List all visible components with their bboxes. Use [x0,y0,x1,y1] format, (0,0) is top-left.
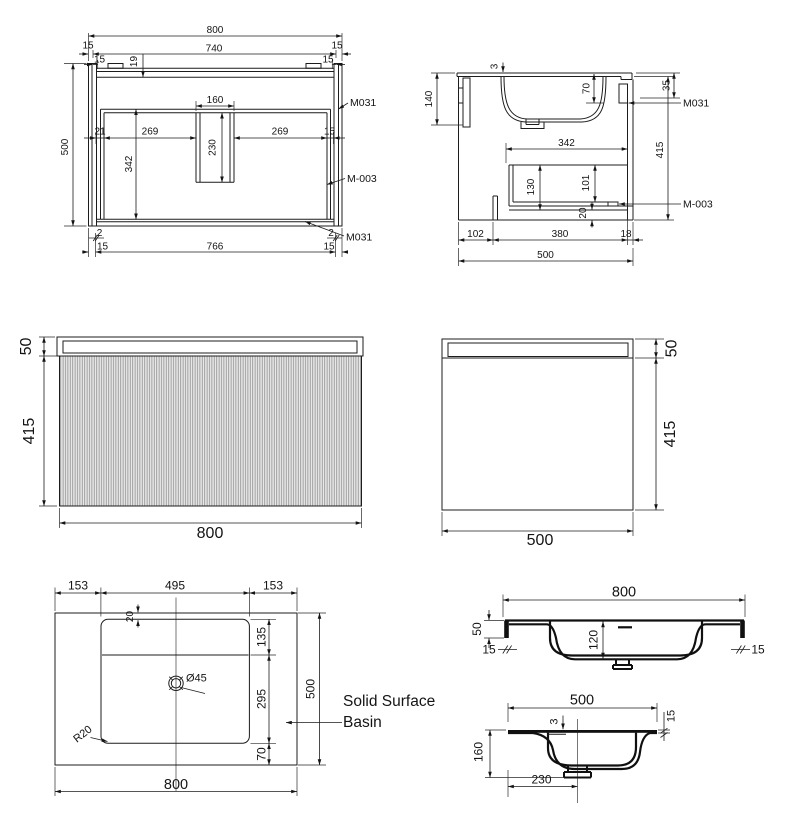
dim-top-height: 50 [18,338,35,356]
dim-overall-depth: 500 [537,250,554,261]
dim-margin-left: 153 [68,579,88,593]
vanity-drawing-canvas: 800 740 15 15 15 15 19 500 160 21 269 23… [0,0,800,839]
dim-edge-left: 15 [482,643,496,657]
part-label-m003: M-003 [683,199,713,211]
dim-width: 800 [612,585,636,601]
basin-note-line2: Basin [343,714,382,731]
dim-inner-height: 342 [124,155,135,172]
dim-depth: 500 [570,693,594,709]
dim-foot-right: 2 [328,228,334,239]
fluted-door-panel [60,356,362,506]
drawer-runner [608,202,618,206]
part-label-m031-top: M031 [350,97,376,109]
radius-leader [91,738,108,742]
side-elevation-view: 50 415 500 [442,339,681,549]
dim-width: 800 [197,525,224,542]
dim-drawer-depth: 380 [552,229,569,240]
dim-bowl-width: 495 [165,579,185,593]
dim-divider-width: 160 [207,95,224,106]
front-elevation-view: 50 415 800 [18,337,363,542]
corner-radius-label: R20 [71,723,94,745]
side-section-outline [457,73,633,220]
dim-body-height: 415 [662,421,679,448]
dim-base-width: 766 [207,242,224,253]
dimension-labels: 50 415 500 [527,340,681,550]
dim-top-panel: 740 [206,44,223,55]
dim-top-thickness: 3 [490,63,501,69]
dim-total-height: 160 [472,742,486,762]
basin-profile [504,621,745,670]
dim-edge-right: 15 [331,41,343,52]
drain-diameter-label: Ø45 [186,673,207,685]
dimension-lines [442,339,656,531]
dimension-lines [55,593,320,792]
front-section-view: 800 740 15 15 15 15 19 500 160 21 269 23… [60,25,377,257]
dim-depth: 500 [527,532,554,549]
dim-cabinet-height: 415 [655,141,666,158]
part-label-m031-bottom: M031 [346,232,372,244]
dim-rim-offset: 20 [125,611,136,623]
dim-overall-width: 800 [207,25,224,36]
dim-drawer-width: 342 [558,138,575,149]
dim-overall-depth: 500 [304,679,318,699]
wall-clip-left [108,64,123,69]
extension-lines [484,595,745,639]
cabinet-side [442,339,633,510]
dim-base-gap: 20 [578,207,589,219]
drain-profile [613,659,632,669]
dim-basin-height: 140 [424,90,435,107]
dim-margin-right: 153 [263,579,283,593]
dim-body-height: 415 [21,418,38,445]
dim-bowl-depth: 120 [587,630,601,650]
dim-edge-left: 15 [82,41,94,52]
dim-divider-height: 230 [208,139,219,156]
dim-edge-height: 50 [470,622,484,636]
basin-section-length-view: 800 50 15 120 15 [470,585,765,670]
dim-bowl-depth: 295 [255,689,269,709]
part-label-m031: M031 [683,98,709,110]
dim-foot-left: 2 [97,228,103,239]
dim-front-margin: 70 [255,747,269,761]
dim-ledge-drop: 3 [548,718,560,724]
basin-inner [101,619,249,743]
part-label-m003: M-003 [347,173,377,185]
basin-profile [508,719,657,803]
basin-drain [521,119,544,129]
dim-base-right: 15 [323,242,335,253]
dim-overall-width: 800 [164,777,188,793]
dim-offset-left: 21 [94,127,106,138]
back-panel [459,78,471,127]
dim-rail-height: 19 [129,56,140,68]
hanger-bracket [619,84,628,103]
dim-overall-height: 500 [60,138,71,155]
dim-drawer-height: 130 [526,178,537,195]
basin-section-width-view: 500 3 15 160 230 [472,693,678,804]
countertop-recess [63,341,357,353]
dim-top-height: 50 [664,340,681,358]
dim-hanger-offset: 35 [662,80,673,92]
dim-bay-left: 269 [142,127,159,138]
dimension-labels: 153 495 153 20 135 295 70 500 800 Ø45 R2… [68,579,435,794]
side-section-view: 140 3 70 35 M031 342 130 101 20 M-003 10… [424,63,713,267]
dimension-labels: 800 740 15 15 15 15 19 500 160 21 269 23… [60,25,377,253]
dim-bowl-depth: 70 [582,83,593,95]
dim-drain-offset: 230 [531,773,551,787]
dim-ledge-depth: 135 [255,627,269,647]
dimension-labels: 140 3 70 35 M031 342 130 101 20 M-003 10… [424,63,713,261]
dim-inset-right: 15 [322,55,334,66]
extension-lines [442,339,664,536]
dim-front-gap: 18 [620,229,632,240]
wall-clip-right [306,64,321,69]
technical-drawing-page: 800 740 15 15 15 15 19 500 160 21 269 23… [0,0,800,839]
dim-drawer-inner: 101 [581,174,592,191]
dim-back-depth: 102 [467,229,484,240]
edge-drop-left [504,621,509,639]
dim-bay-right: 269 [272,127,289,138]
dim-gap-right: 15 [324,127,336,138]
dim-rim-thickness: 15 [665,710,677,722]
basin-top-view: 153 495 153 20 135 295 70 500 800 Ø45 R2… [55,579,435,797]
dim-inset-left: 15 [94,55,106,66]
extension-lines [64,33,342,257]
basin-note-line1: Solid Surface [343,693,435,710]
countertop-recess [448,343,628,357]
dimension-lines [489,600,750,659]
dim-edge-right: 15 [751,643,765,657]
dim-base-left: 15 [97,242,109,253]
edge-drop-right [740,621,745,639]
